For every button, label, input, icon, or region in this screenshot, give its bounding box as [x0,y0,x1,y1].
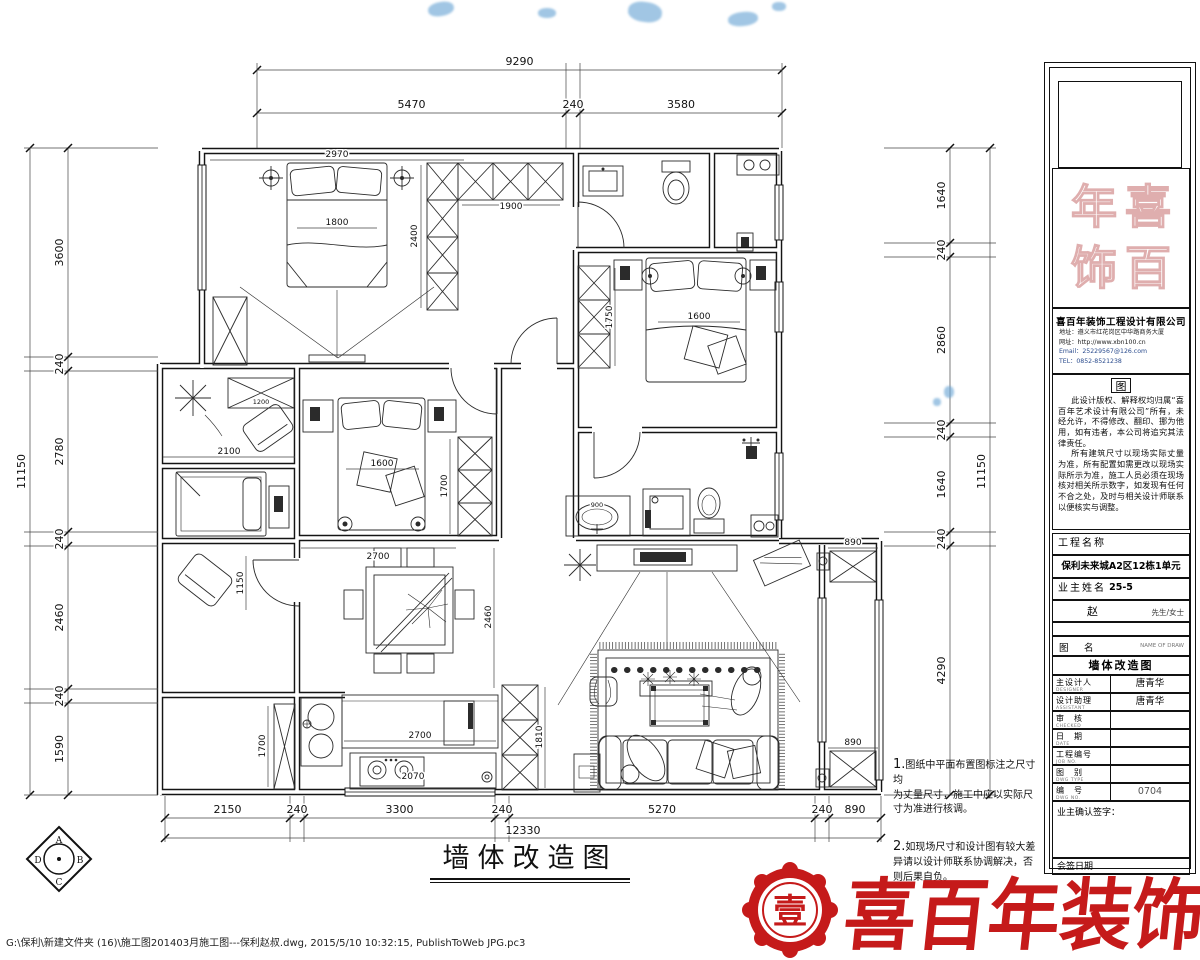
seal-character: 壹 [773,892,807,932]
dim-label: 240 [53,354,66,375]
notice-paragraph-1: 此设计版权、解释权均归属“喜百年艺术设计有限公司”所有，未经允许，不得修改、翻印… [1053,395,1189,448]
dim-label: 2100 [218,447,241,457]
corner-emblem: A D B C [24,824,94,894]
dim-label: 1150 [236,571,246,594]
dim-label: 5270 [648,803,676,816]
project-name-label: 工程名称 [1052,533,1190,555]
dim-label: 5470 [398,98,426,111]
row-value [1111,748,1189,764]
dim-label: 3600 [53,239,66,267]
dim-label: 1750 [605,305,615,328]
spacer-row [1052,622,1190,636]
dim-label: 2150 [214,803,242,816]
row-value: 唐青华 [1111,694,1189,710]
dim-label: 11150 [975,454,988,489]
company-name: 喜百年装饰工程设计有限公司 [1053,314,1189,328]
row-dwg-type: 图 别DWG TYPE [1052,765,1190,783]
dim-label: 1800 [326,218,349,228]
row-label: 日 期 [1056,731,1110,742]
drawing-title: 墙体改造图 [370,836,690,883]
row-label: 编 号 [1056,785,1110,796]
dim-label: 2700 [367,552,390,562]
owner-sign-box: 业主确认签字： [1052,801,1190,858]
dim-label: 240 [563,98,584,111]
row-value: 唐青华 [1111,676,1189,692]
seal-char: 喜 [1125,182,1171,233]
brand-calligraphy: 喜百年装饰 [839,852,1200,960]
row-label: 工程编号 [1056,749,1110,760]
file-path: G:\保利\新建文件夹 (16)\施工图201403月施工图---保利赵叔.dw… [6,934,525,949]
interior-dim-labels: 2970 1800 1900 2400 1200 2100 1600 1750 … [218,150,862,782]
dim-label: 2970 [326,150,349,160]
dim-label: 890 [845,803,866,816]
dim-label: 240 [492,803,513,816]
row-date: 日 期DATE [1052,729,1190,747]
title-underline-thin [430,882,630,883]
brand-seal: 壹 [742,862,838,958]
walls [160,151,881,795]
dim-label: 240 [812,803,833,816]
dim-label: 3580 [667,98,695,111]
project-name: 保利未来城A2区12栋1单元25-5 [1052,555,1190,578]
owner-name: 赵 [1087,603,1098,619]
dim-label: 1590 [53,735,66,763]
row-label: 主设计人 [1056,677,1110,688]
dim-label: 1640 [935,471,948,499]
dim-label: 2780 [53,438,66,466]
dim-label: 240 [935,529,948,550]
company-info: 喜百年装饰工程设计有限公司 地址：遵义市红花岗区中华路商务大厦 网址：http:… [1052,308,1190,374]
wardrobe-master [427,163,563,310]
company-address: 地址：遵义市红花岗区中华路商务大厦 [1053,328,1189,338]
dim-label: 890 [844,538,861,548]
row-checked: 审 核CHECKED [1052,711,1190,729]
owner-suffix: 先生/女士 [1151,607,1184,618]
drawing-name-label-en: NAME OF DRAW [1140,643,1184,649]
floor-plan-drawing: 2970 1800 1900 2400 1200 2100 1600 1750 … [0,0,1040,960]
row-label: 图 别 [1056,767,1110,778]
dim-label: 1900 [500,202,523,212]
dim-label: 9290 [506,55,534,68]
dim-label: 2400 [410,224,420,247]
dim-label: 1200 [253,398,270,406]
living-room [558,540,811,792]
row-value [1111,766,1189,782]
artifact-smudge [944,386,954,398]
bathroom2 [566,437,778,537]
dim-label: 240 [53,529,66,550]
seal-char: 百 [1125,243,1171,294]
dim-label: 1700 [258,734,268,757]
copyright-notice: 图 此设计版权、解释权均归属“喜百年艺术设计有限公司”所有，未经允许，不得修改、… [1052,374,1190,530]
artifact-smudge [538,8,556,18]
dining-set [344,548,474,673]
title-underline [430,878,630,880]
dim-label: 890 [844,738,861,748]
emblem-letter: A [55,836,63,846]
row-dwg-no: 编 号DWG NO. 0704 [1052,783,1190,801]
dim-label: 240 [935,420,948,441]
row-job-no: 工程编号JOB NO. [1052,747,1190,765]
dim-label: 1600 [688,312,711,322]
row-value [1111,712,1189,728]
dim-label: 1700 [440,474,450,497]
emblem-letter: B [77,856,84,866]
row-designer: 主设计人DESIGNER 唐青华 [1052,675,1190,693]
shoe-cabinet [213,297,247,365]
emblem-letter: C [56,878,63,888]
notice-paragraph-2: 所有建筑尺寸以现场实际丈量为准，所有配置如需更改以现场实际所示为准，施工人员必须… [1053,448,1189,512]
dim-label: 2860 [935,326,948,354]
company-email: Email：25229567@126.com [1053,347,1189,357]
dim-label: 1640 [935,182,948,210]
company-seal: 年 喜 饰 百 [1052,168,1190,308]
bathroom1-fixtures [583,161,690,204]
dim-label: 2460 [53,604,66,632]
row-assistant: 设计助理ASSISTANT 唐青华 [1052,693,1190,711]
dim-label: 3300 [386,803,414,816]
dim-label: 2460 [484,605,494,628]
utility-room [737,155,779,251]
row-value: 0704 [1111,784,1189,800]
company-tel: TEL：0852-8521238 [1053,357,1189,367]
drawing-name: 墙体改造图 [1052,656,1190,675]
dim-label: 1810 [535,725,545,748]
dim-label: 240 [287,803,308,816]
dim-label: 11150 [15,454,28,489]
dim-label: 2070 [402,772,425,782]
row-value [1111,730,1189,746]
row-label: 审 核 [1056,713,1110,724]
dim-label: 240 [53,686,66,707]
note-1: 1.图纸中平面布置图标注之尺寸均 为丈量尺寸，施工中应以实际尺 寸为准进行核调。 [893,756,1045,817]
dim-label: 1600 [371,459,394,469]
company-web: 网址：http://www.xbn100.cn [1053,338,1189,348]
dim-label: 900 [591,501,603,509]
row-label: 设计助理 [1056,695,1110,706]
cad-sheet: { "page": { "file_path": "G:\\保利\\新建文件夹 … [0,0,1200,960]
drawing-name-label: 图 名 [1059,640,1097,654]
title-block: 年 喜 饰 百 喜百年装饰工程设计有限公司 地址：遵义市红花岗区中华路商务大厦 … [1044,62,1196,874]
dim-label: 2700 [409,731,432,741]
emblem-letter: D [34,856,41,866]
owner-label: 业主姓名 [1052,578,1190,600]
doors [253,202,640,606]
notice-title: 图 [1111,378,1131,393]
seal-char: 年 [1071,182,1117,233]
bedroom3 [303,398,492,536]
seal-char: 饰 [1071,243,1117,294]
dim-label: 4290 [935,657,948,685]
artifact-smudge [933,398,941,406]
bay-projection [240,287,434,362]
title-block-empty-box [1058,81,1182,168]
artifact-smudge [772,2,786,11]
dim-label: 240 [935,240,948,261]
